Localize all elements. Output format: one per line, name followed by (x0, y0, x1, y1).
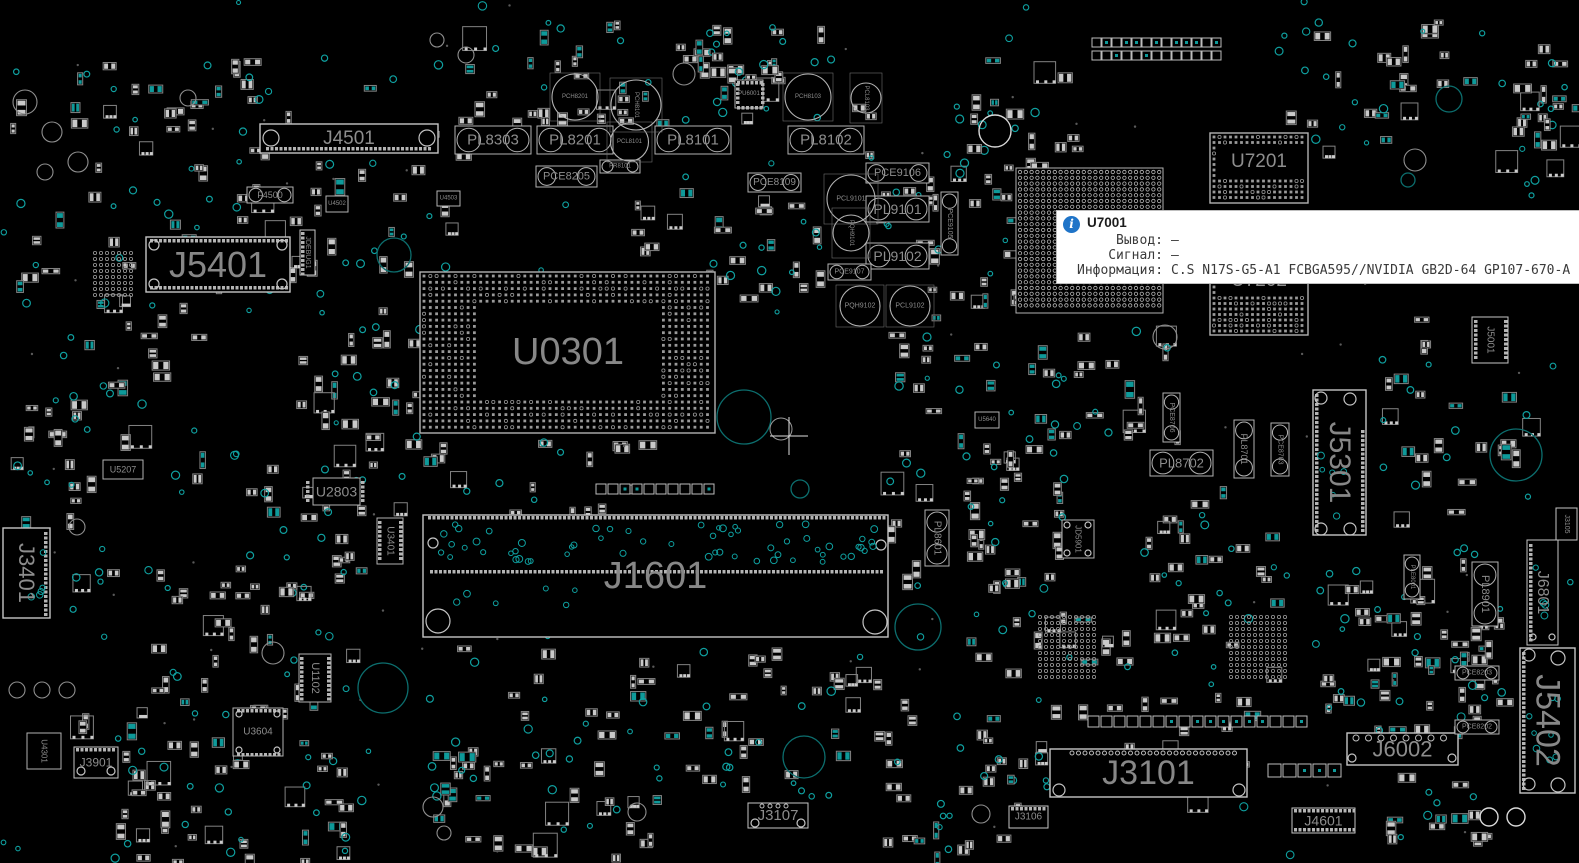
component-pu6001[interactable]: PU6001 (735, 80, 765, 110)
svg-text:U0301: U0301 (512, 331, 624, 373)
svg-text:J5401: J5401 (169, 244, 267, 285)
component-pl8201[interactable]: PL8201 (537, 126, 613, 154)
component-jd5901[interactable]: JD5901 (1062, 520, 1094, 558)
component-j3107[interactable]: J3107 (748, 803, 808, 828)
tooltip-title: U7001 (1087, 215, 1579, 231)
tooltip-row: Вывод:— (1077, 233, 1579, 248)
component-pqh9102[interactable]: PQH9102 (836, 285, 884, 327)
svg-text:U7201: U7201 (1231, 151, 1287, 172)
component-pcl9102[interactable]: PCL9102 (886, 285, 934, 327)
component-pqh9101[interactable]: PQH9101 (832, 208, 870, 258)
component-j3101[interactable]: J3101 (1050, 749, 1247, 797)
component-j4501[interactable]: J4501 (260, 124, 438, 153)
component-u5640[interactable]: U5640 (975, 412, 999, 428)
component-j3105[interactable]: J3105 (1556, 508, 1577, 540)
component-pl9102[interactable]: PL9102 (866, 243, 929, 269)
component-u7201[interactable]: U7201 (1210, 133, 1308, 203)
board-canvas[interactable]: J4501J5401U0301J1601U7201U7202J5301J5402… (0, 0, 1579, 863)
tooltip-row-value: — (1171, 248, 1179, 263)
component-j5301[interactable]: J5301 (1313, 390, 1366, 535)
component-ple8001[interactable]: PLE8001 (1404, 555, 1420, 599)
component-pce9105[interactable]: PCE9105 (941, 192, 958, 255)
component-u4301[interactable]: U4301 (27, 733, 61, 769)
component-j5402[interactable]: J5402 (1520, 648, 1575, 793)
component-j4601[interactable]: J4601 (1292, 808, 1356, 833)
board-root: J4501J5401U0301J1601U7201U7202J5301J5402… (0, 0, 1579, 863)
component-f4500[interactable]: F4500 (247, 187, 293, 203)
cursor-crosshair (770, 417, 808, 455)
component-j1601[interactable]: J1601 (423, 515, 888, 637)
component-tooltip: i U7001 Вывод:— Сигнал:— Информация:C.S … (1056, 210, 1579, 284)
info-icon: i (1063, 216, 1080, 233)
component-pce8202[interactable]: PCE8202 (1455, 720, 1499, 734)
tooltip-row: Информация:C.S N17S-G5-A1 FCBGA595//NVID… (1077, 263, 1579, 278)
component-j6801[interactable]: J6801 (1527, 540, 1558, 645)
tooltip-row-label: Информация: (1077, 263, 1163, 278)
component-j5401[interactable]: J5401 (146, 237, 290, 292)
tooltip-row-label: Сигнал: (1077, 248, 1163, 263)
tooltip-row-value: — (1171, 233, 1179, 248)
component-j3901[interactable]: J3901 (74, 747, 118, 778)
component-u1102[interactable]: U1102 (299, 654, 331, 702)
component-jdebug1[interactable]: JDEBUG1 (300, 230, 315, 276)
component-pl8701[interactable]: PL8701 (1234, 420, 1254, 478)
component-pl8102[interactable]: PL8102 (788, 126, 864, 154)
component-pl8702[interactable]: PL8702 (1150, 450, 1213, 476)
component-pl8303[interactable]: PL8303 (455, 126, 531, 154)
component-pch8103[interactable]: PCH8103 (783, 73, 833, 121)
component-j3106[interactable]: J3106 (1009, 806, 1048, 828)
tooltip-row-label: Вывод: (1077, 233, 1163, 248)
component-pce8203[interactable]: PCE8203 (1455, 666, 1499, 680)
component-pce8109[interactable]: PCE8109 (748, 173, 801, 192)
component-pl8901[interactable]: PL8901 (1472, 562, 1498, 626)
component-u2803[interactable]: U2803 (306, 478, 365, 505)
component-u4502[interactable]: U4502 (326, 196, 348, 212)
component-u3401[interactable]: U3401 (377, 518, 403, 564)
component-j6002[interactable]: J6002 (1347, 733, 1458, 765)
component-pce8205[interactable]: PCE8205 (536, 166, 597, 187)
svg-text:J1601: J1601 (604, 555, 708, 597)
svg-text:J4501: J4501 (323, 128, 375, 149)
tooltip-row-value: C.S N17S-G5-A1 FCBGA595//NVIDIA GB2D-64 … (1171, 263, 1570, 278)
component-pce8703[interactable]: PCE8703 (1271, 423, 1289, 476)
component-pl8101[interactable]: PL8101 (655, 126, 731, 154)
component-j3401[interactable]: J3401 (3, 528, 50, 618)
component-u0301[interactable]: U0301 (420, 272, 715, 433)
component-pce9107[interactable]: PCE9107 (828, 264, 871, 280)
component-pl8601[interactable]: PL8601 (925, 510, 949, 566)
component-pce8706[interactable]: PCE8706 (1163, 393, 1180, 442)
component-u3604[interactable]: U3604 (233, 708, 283, 757)
component-j5001[interactable]: J5001 (1472, 317, 1508, 363)
component-pce9106[interactable]: PCE9106 (866, 163, 929, 183)
component-u5207[interactable]: U5207 (103, 460, 143, 479)
component-u4503[interactable]: U4503 (437, 191, 460, 206)
tooltip-row: Сигнал:— (1077, 248, 1579, 263)
